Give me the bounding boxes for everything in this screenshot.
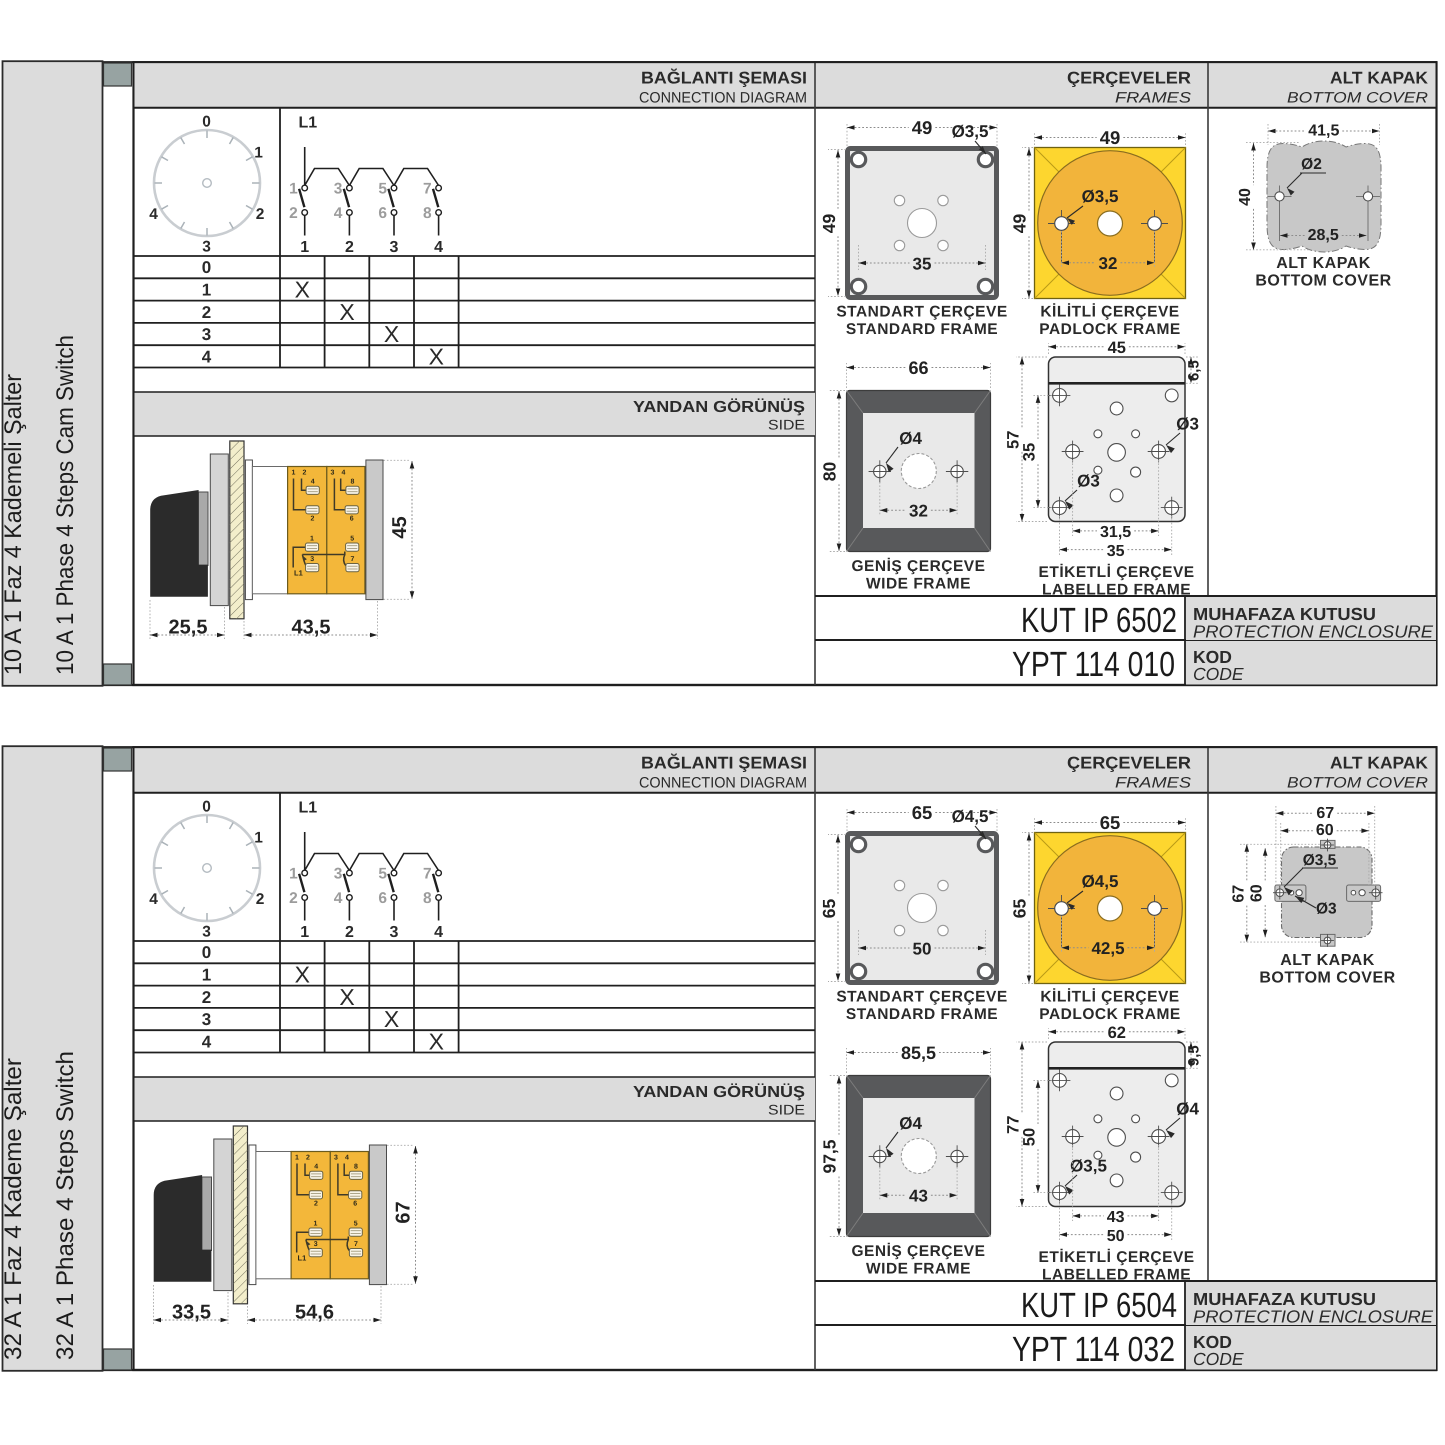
svg-text:WIDE FRAME: WIDE FRAME [866,1261,971,1278]
svg-text:ETİKETLİ ÇERÇEVE: ETİKETLİ ÇERÇEVE [1039,563,1195,581]
svg-text:ALT KAPAK: ALT KAPAK [1276,255,1371,272]
svg-text:50: 50 [1021,1128,1039,1146]
svg-text:PROTECTION ENCLOSURE: PROTECTION ENCLOSURE [1193,622,1433,642]
svg-text:BAĞLANTI ŞEMASI: BAĞLANTI ŞEMASI [641,753,807,773]
svg-text:2: 2 [306,1155,310,1162]
svg-text:45: 45 [389,516,411,538]
svg-text:YPT 114 032: YPT 114 032 [1012,1330,1175,1369]
svg-text:42,5: 42,5 [1091,939,1124,958]
svg-text:32 A 1 Phase 4 Steps Switch: 32 A 1 Phase 4 Steps Switch [52,1051,79,1360]
svg-text:3: 3 [390,924,399,941]
svg-text:Ø4,5: Ø4,5 [1082,872,1119,891]
svg-text:4: 4 [334,890,343,907]
svg-text:62: 62 [1108,1024,1126,1042]
svg-text:ÇERÇEVELER: ÇERÇEVELER [1067,754,1191,773]
svg-text:ETİKETLİ ÇERÇEVE: ETİKETLİ ÇERÇEVE [1039,1248,1195,1266]
svg-text:43,5: 43,5 [292,617,331,639]
svg-text:33,5: 33,5 [172,1302,211,1324]
svg-text:6: 6 [353,1201,357,1208]
svg-text:KİLİTLİ ÇERÇEVE: KİLİTLİ ÇERÇEVE [1040,303,1179,321]
svg-text:1: 1 [295,1155,299,1162]
svg-text:PADLOCK FRAME: PADLOCK FRAME [1039,1006,1180,1023]
svg-text:STANDART ÇERÇEVE: STANDART ÇERÇEVE [836,989,1007,1006]
svg-text:28,5: 28,5 [1308,227,1339,244]
svg-text:X: X [339,299,354,325]
svg-text:4: 4 [314,1164,318,1171]
svg-text:Ø3: Ø3 [1176,415,1199,434]
svg-text:49: 49 [912,117,933,138]
svg-text:BOTTOM COVER: BOTTOM COVER [1287,775,1428,792]
svg-text:Ø4: Ø4 [899,1114,922,1133]
svg-text:0: 0 [202,799,211,816]
svg-text:60: 60 [1249,884,1266,902]
svg-text:67: 67 [1230,885,1247,903]
svg-text:32: 32 [909,502,928,521]
svg-text:CONNECTION DIAGRAM: CONNECTION DIAGRAM [639,775,807,792]
svg-text:7: 7 [354,1241,358,1248]
svg-text:2: 2 [256,206,265,223]
svg-text:ALT KAPAK: ALT KAPAK [1330,69,1429,88]
svg-text:6: 6 [378,890,387,907]
svg-text:SIDE: SIDE [768,1102,805,1118]
svg-text:5: 5 [378,865,387,882]
svg-text:X: X [384,1006,399,1032]
svg-text:STANDART ÇERÇEVE: STANDART ÇERÇEVE [836,304,1007,321]
svg-text:1: 1 [202,281,211,300]
svg-text:YPT 114 010: YPT 114 010 [1012,645,1175,684]
svg-text:Ø4: Ø4 [899,429,922,448]
svg-text:1: 1 [202,966,211,985]
svg-text:Ø3,5: Ø3,5 [1070,1156,1107,1175]
svg-text:45: 45 [1108,339,1126,357]
svg-text:65: 65 [819,899,839,919]
svg-text:FRAMES: FRAMES [1115,90,1191,107]
svg-text:1: 1 [254,830,263,847]
svg-text:43: 43 [909,1187,928,1206]
svg-text:X: X [429,1028,444,1054]
svg-text:25,5: 25,5 [169,617,208,639]
svg-text:8: 8 [351,479,355,486]
svg-text:10 A 1 Faz 4 Kademeli Şalter: 10 A 1 Faz 4 Kademeli Şalter [0,374,27,675]
svg-text:4: 4 [334,205,343,222]
svg-text:BOTTOM COVER: BOTTOM COVER [1287,90,1428,107]
svg-text:2: 2 [289,890,298,907]
svg-text:2: 2 [310,516,314,523]
svg-text:35: 35 [1021,443,1039,461]
svg-text:BAĞLANTI ŞEMASI: BAĞLANTI ŞEMASI [641,68,807,88]
svg-text:3: 3 [202,325,211,344]
svg-text:50: 50 [1107,1228,1125,1245]
svg-text:Ø4,5: Ø4,5 [952,807,989,826]
svg-text:2: 2 [256,891,265,908]
svg-text:6: 6 [350,516,354,523]
svg-text:3: 3 [202,239,211,256]
svg-text:49: 49 [1010,214,1030,234]
svg-text:STANDARD FRAME: STANDARD FRAME [846,1006,998,1023]
svg-text:8: 8 [354,1164,358,1171]
svg-text:3: 3 [334,180,343,197]
svg-text:4: 4 [202,1032,212,1051]
svg-text:5: 5 [378,180,387,197]
svg-text:2: 2 [202,988,211,1007]
svg-text:2: 2 [345,924,354,941]
svg-text:FRAMES: FRAMES [1115,775,1191,792]
svg-text:97,5: 97,5 [820,1139,840,1173]
svg-text:L1: L1 [299,115,318,132]
svg-text:3: 3 [202,1010,211,1029]
svg-text:4: 4 [149,206,158,223]
svg-text:4: 4 [434,924,443,941]
svg-text:Ø3,5: Ø3,5 [1082,187,1119,206]
svg-text:CONNECTION DIAGRAM: CONNECTION DIAGRAM [639,90,807,107]
svg-text:2: 2 [314,1201,318,1208]
svg-text:ÇERÇEVELER: ÇERÇEVELER [1067,69,1191,88]
svg-text:40: 40 [1237,188,1254,206]
svg-text:X: X [295,962,310,988]
svg-text:PROTECTION ENCLOSURE: PROTECTION ENCLOSURE [1193,1307,1433,1327]
svg-text:5: 5 [350,535,354,542]
svg-text:3: 3 [310,556,314,563]
svg-text:1: 1 [254,145,263,162]
svg-text:3: 3 [390,239,399,256]
svg-text:X: X [384,321,399,347]
svg-text:0: 0 [202,258,211,277]
svg-text:Ø2: Ø2 [1301,156,1322,173]
svg-text:49: 49 [1100,127,1121,148]
svg-text:35: 35 [1107,543,1125,560]
svg-text:1: 1 [289,865,298,882]
svg-text:0: 0 [202,943,211,962]
svg-text:6,5: 6,5 [1186,360,1203,381]
svg-text:67: 67 [393,1201,415,1223]
svg-text:GENİŞ ÇERÇEVE: GENİŞ ÇERÇEVE [852,557,986,575]
svg-text:32 A 1 Faz 4 Kademe Şalter: 32 A 1 Faz 4 Kademe Şalter [0,1058,27,1360]
svg-text:6: 6 [378,205,387,222]
svg-text:X: X [295,277,310,303]
svg-text:41,5: 41,5 [1308,123,1339,140]
svg-text:L1: L1 [294,569,303,578]
svg-text:85,5: 85,5 [901,1043,936,1063]
svg-text:3: 3 [202,924,211,941]
svg-text:BOTTOM COVER: BOTTOM COVER [1259,970,1395,987]
svg-text:X: X [339,984,354,1010]
svg-text:ALT KAPAK: ALT KAPAK [1330,754,1429,773]
svg-text:1: 1 [314,1220,318,1227]
svg-text:3: 3 [334,865,343,882]
svg-text:PADLOCK FRAME: PADLOCK FRAME [1039,321,1180,338]
svg-text:4: 4 [434,239,443,256]
svg-text:0: 0 [202,114,211,131]
svg-text:Ø3: Ø3 [1316,901,1337,918]
svg-text:9,5: 9,5 [1186,1045,1203,1066]
svg-text:8: 8 [423,205,432,222]
svg-text:5: 5 [354,1220,358,1227]
svg-text:X: X [429,343,444,369]
svg-text:2: 2 [345,239,354,256]
svg-text:Ø3: Ø3 [1077,471,1100,490]
svg-text:65: 65 [1100,812,1121,833]
svg-text:8: 8 [423,890,432,907]
svg-text:L1: L1 [299,800,318,817]
svg-text:Ø3,5: Ø3,5 [952,122,989,141]
svg-text:1: 1 [300,924,309,941]
svg-text:CODE: CODE [1193,664,1244,684]
svg-text:2: 2 [202,303,211,322]
svg-text:BOTTOM COVER: BOTTOM COVER [1255,273,1391,290]
svg-text:2: 2 [303,470,307,477]
svg-text:80: 80 [820,462,840,482]
svg-text:L1: L1 [298,1254,307,1263]
svg-text:65: 65 [1010,899,1030,919]
svg-text:3: 3 [331,470,335,477]
svg-text:1: 1 [289,180,298,197]
svg-text:31,5: 31,5 [1100,524,1131,541]
svg-text:67: 67 [1316,805,1334,822]
svg-text:32: 32 [1099,254,1118,273]
svg-text:WIDE FRAME: WIDE FRAME [866,576,971,593]
svg-text:1: 1 [310,535,314,542]
svg-text:43: 43 [1107,1209,1125,1226]
svg-text:60: 60 [1316,822,1334,839]
svg-text:SIDE: SIDE [768,417,805,433]
svg-text:4: 4 [202,347,212,366]
svg-text:7: 7 [423,865,432,882]
svg-text:7: 7 [423,180,432,197]
svg-text:Ø4: Ø4 [1176,1100,1199,1119]
svg-text:CODE: CODE [1193,1349,1244,1369]
svg-text:3: 3 [314,1241,318,1248]
svg-text:10 A 1 Phase 4 Steps Cam Switc: 10 A 1 Phase 4 Steps Cam Switch [52,335,79,675]
svg-text:3: 3 [334,1155,338,1162]
svg-text:4: 4 [345,1155,349,1162]
svg-text:KİLİTLİ ÇERÇEVE: KİLİTLİ ÇERÇEVE [1040,988,1179,1006]
svg-text:65: 65 [912,802,933,823]
svg-text:2: 2 [289,205,298,222]
svg-text:4: 4 [311,479,315,486]
svg-text:YANDAN GÖRÜNÜŞ: YANDAN GÖRÜNÜŞ [633,1083,805,1101]
svg-text:4: 4 [149,891,158,908]
svg-text:KUT IP 6504: KUT IP 6504 [1021,1286,1177,1325]
svg-text:YANDAN GÖRÜNÜŞ: YANDAN GÖRÜNÜŞ [633,398,805,416]
svg-text:GENİŞ ÇERÇEVE: GENİŞ ÇERÇEVE [852,1242,986,1260]
svg-text:Ø3,5: Ø3,5 [1303,852,1337,869]
svg-text:35: 35 [913,254,932,273]
svg-text:STANDARD FRAME: STANDARD FRAME [846,321,998,338]
svg-text:49: 49 [819,214,839,234]
svg-text:7: 7 [351,556,355,563]
svg-text:54,6: 54,6 [295,1302,334,1324]
svg-text:4: 4 [342,470,346,477]
svg-text:66: 66 [908,358,928,378]
svg-text:1: 1 [292,470,296,477]
svg-text:KUT IP 6502: KUT IP 6502 [1021,601,1177,640]
svg-text:ALT KAPAK: ALT KAPAK [1280,952,1375,969]
svg-text:1: 1 [300,239,309,256]
svg-text:50: 50 [913,939,932,958]
